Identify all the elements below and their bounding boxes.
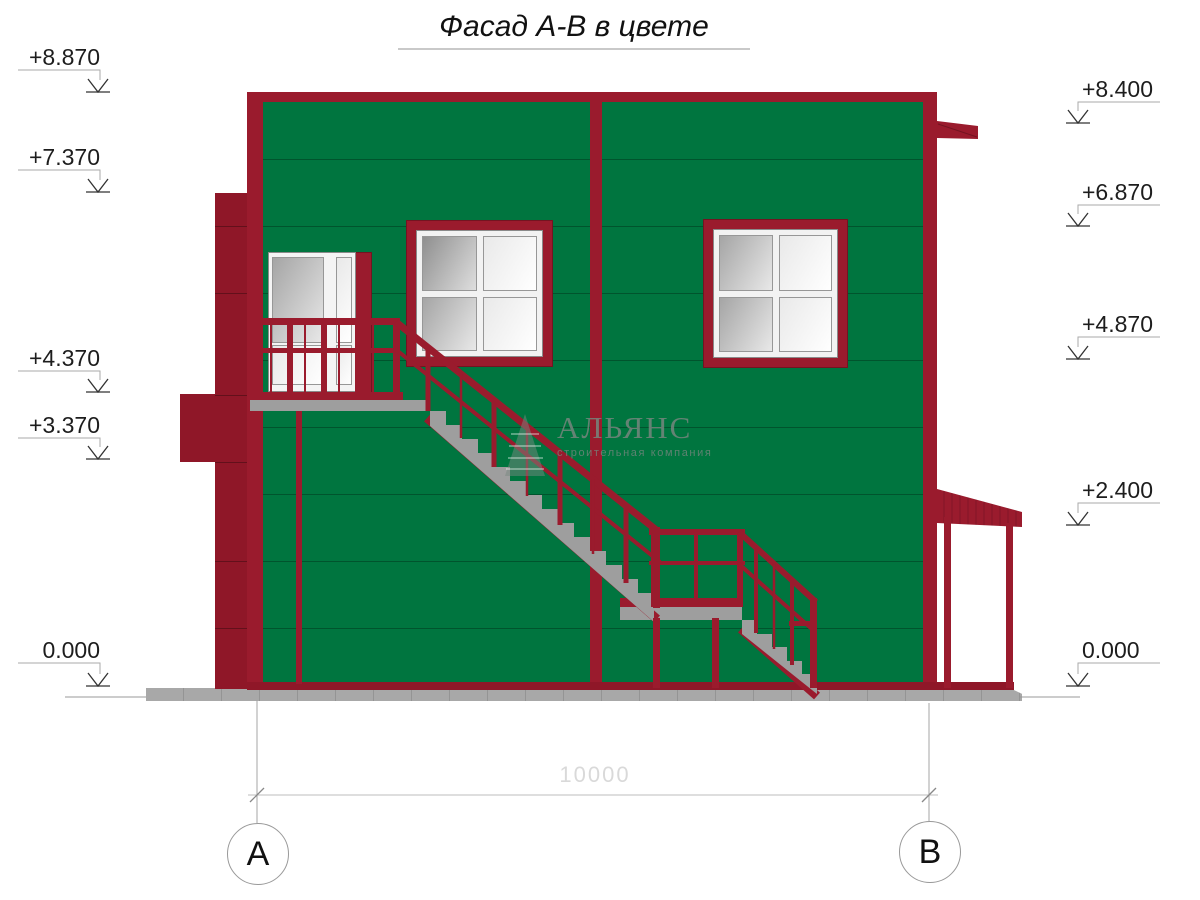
level-label: +4.370: [10, 345, 100, 372]
level-label: +7.370: [10, 144, 100, 171]
door-panel-lower: [336, 345, 352, 385]
window-pane: [422, 297, 477, 352]
door-glass-right: [336, 257, 352, 343]
window-frame: [416, 230, 543, 357]
parapet-band: [247, 92, 937, 102]
canopy-post: [1006, 523, 1013, 688]
panel-joint-line: [215, 561, 247, 562]
corner-trim-left: [247, 102, 263, 689]
sail-logo-icon: [503, 412, 547, 478]
window-right: [703, 219, 848, 368]
level-label: +2.400: [1082, 477, 1182, 504]
facade-elevation-drawing: Фасад А-В в цвете: [0, 0, 1200, 900]
door-frame: [268, 252, 356, 392]
level-label: 0.000: [10, 637, 100, 664]
canopy-post: [944, 517, 951, 688]
window-pane: [483, 297, 538, 352]
watermark-subtitle: строительная компания: [557, 447, 712, 459]
center-trim-strip: [590, 102, 602, 689]
panel-joint-line: [215, 462, 247, 463]
corner-trim-right: [923, 102, 937, 689]
watermark: АЛЬЯНС строительная компания: [503, 412, 712, 478]
window-center: [406, 220, 553, 367]
watermark-name: АЛЬЯНС: [557, 412, 712, 443]
door-panel-lower: [272, 345, 324, 385]
side-wall-projection: [180, 394, 215, 462]
axis-bubble-b: В: [899, 821, 961, 883]
window-pane: [719, 297, 773, 353]
level-label: +4.870: [1082, 311, 1182, 338]
panel-joint-line: [215, 628, 247, 629]
dimension-ticks: [250, 788, 936, 802]
entrance-canopy: [937, 486, 1022, 688]
panel-joint-line: [215, 293, 247, 294]
window-pane: [779, 297, 833, 353]
level-label: 0.000: [1082, 637, 1182, 664]
dimension-value: 10000: [540, 762, 650, 788]
base-plinth-band: [247, 682, 1014, 690]
window-pane: [719, 235, 773, 291]
level-label: +3.370: [10, 412, 100, 439]
window-frame: [713, 229, 838, 358]
level-label: +8.400: [1082, 76, 1182, 103]
level-label: +8.870: [10, 44, 100, 71]
side-wall-panel: [215, 193, 247, 689]
axis-bubble-a: А: [227, 823, 289, 885]
roof-spout: [937, 121, 978, 139]
balcony-door: [268, 252, 372, 400]
window-pane: [422, 236, 477, 291]
panel-joint-line: [215, 226, 247, 227]
window-pane: [483, 236, 538, 291]
level-label: +6.870: [1082, 179, 1182, 206]
door-glass-left: [272, 257, 324, 343]
window-pane: [779, 235, 833, 291]
panel-joint-line: [215, 395, 247, 396]
drawing-title: Фасад А-В в цвете: [398, 10, 750, 50]
